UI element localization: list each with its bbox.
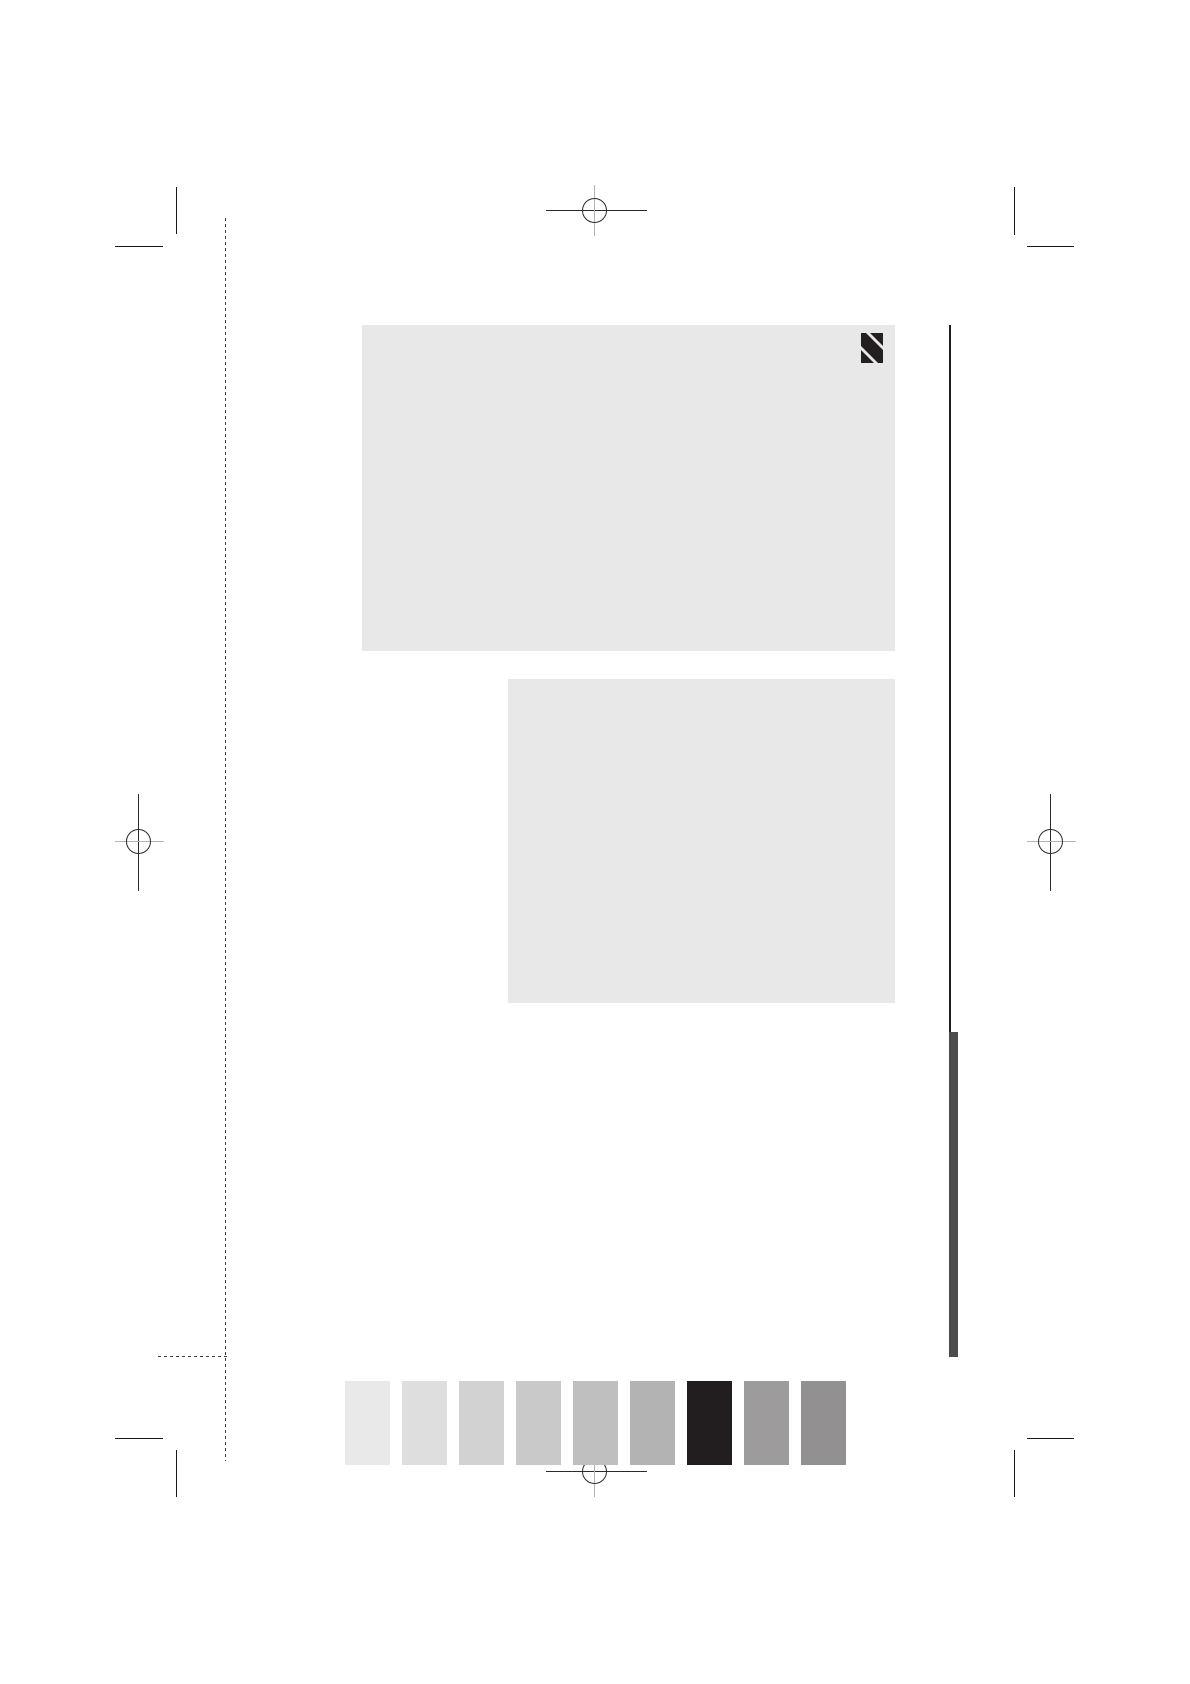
- grayscale-swatch-7: [687, 1381, 732, 1465]
- crop-mark-bottom-right-horizontal: [1027, 1438, 1074, 1439]
- content-block-1: [362, 325, 895, 651]
- fold-line-vertical: [225, 218, 226, 1461]
- crop-mark-top-right-vertical: [1014, 187, 1015, 235]
- crop-mark-top-right-horizontal: [1027, 246, 1074, 247]
- grayscale-swatch-6: [630, 1381, 675, 1465]
- grayscale-swatch-2: [402, 1381, 447, 1465]
- grayscale-calibration-bar: [345, 1381, 846, 1465]
- grayscale-swatch-5: [573, 1381, 618, 1465]
- crop-mark-bottom-right-vertical: [1014, 1450, 1015, 1497]
- crop-mark-bottom-left-horizontal: [115, 1438, 163, 1439]
- diagonal-stripes-logo-icon: [861, 333, 883, 363]
- grayscale-swatch-1: [345, 1381, 390, 1465]
- grayscale-swatch-9: [801, 1381, 846, 1465]
- crop-mark-bottom-left-vertical: [176, 1450, 177, 1497]
- page-edge-thin-rule: [949, 325, 951, 1032]
- grayscale-swatch-4: [516, 1381, 561, 1465]
- grayscale-swatch-8: [744, 1381, 789, 1465]
- crop-mark-top-left-horizontal: [115, 246, 163, 247]
- page-canvas: [0, 0, 1190, 1684]
- registration-mark-right-circle-icon: [1038, 829, 1063, 854]
- crop-mark-top-left-vertical: [176, 187, 177, 234]
- registration-mark-left-circle-icon: [126, 829, 151, 854]
- grayscale-swatch-3: [459, 1381, 504, 1465]
- section-thumb-bar: [949, 1032, 958, 1357]
- fold-line-horizontal: [158, 1356, 227, 1357]
- content-block-2: [508, 679, 895, 1003]
- registration-mark-top-circle-icon: [582, 198, 607, 223]
